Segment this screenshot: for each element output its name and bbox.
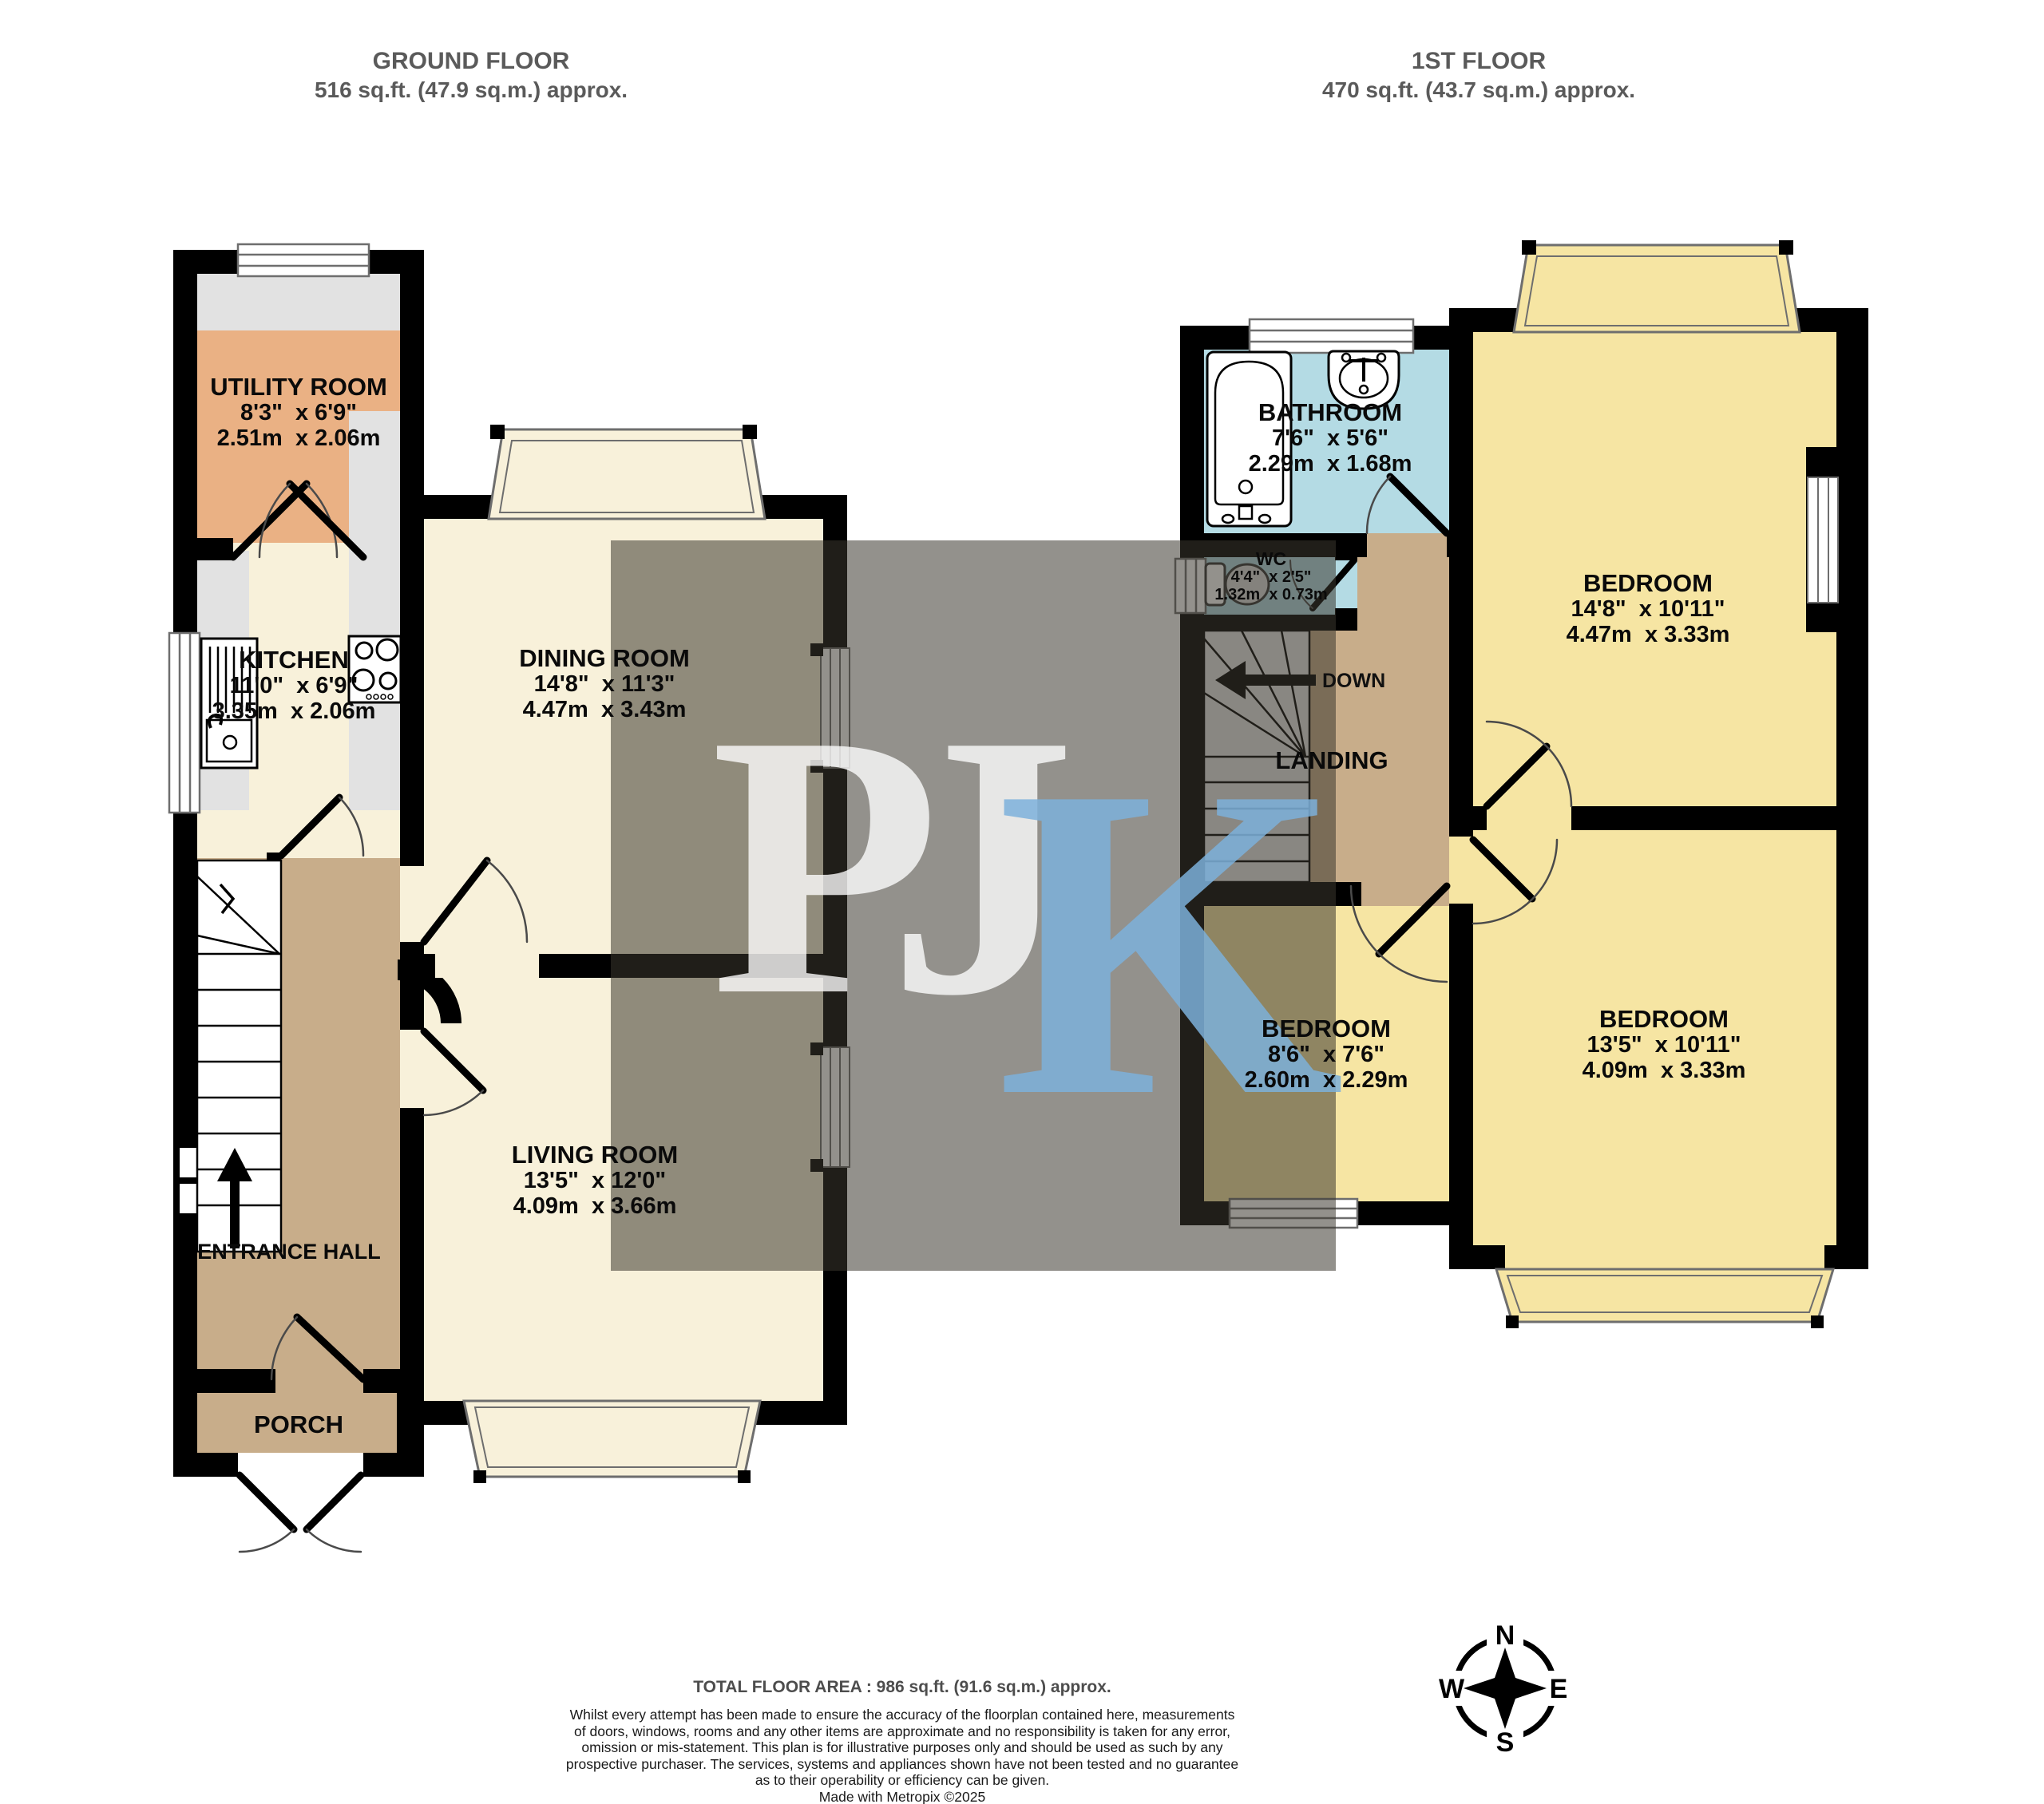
landing-floor-right (1357, 557, 1449, 882)
entrance-hall-label: ENTRANCE HALL (197, 1239, 381, 1265)
bedroom1-side-window (1808, 477, 1838, 603)
room-dims-imperial: 8'3" x 6'9" (210, 400, 387, 425)
dining-room-label: DINING ROOM 14'8" x 11'3" 4.47m x 3.43m (519, 645, 690, 722)
stairs-ground (197, 860, 281, 1252)
dining-bay-window (489, 425, 765, 519)
utility-counter-top (197, 274, 400, 330)
bay-opening-bedroom3 (1505, 1245, 1824, 1269)
landing-label: LANDING (1275, 747, 1388, 773)
door-opening-dining-living (435, 954, 539, 978)
room-dims-metric: 4.09m x 3.33m (1583, 1058, 1746, 1083)
room-dims-metric: 3.35m x 2.06m (212, 698, 376, 724)
door-opening-hall-dining (400, 866, 424, 942)
room-name: BATHROOM (1249, 399, 1412, 425)
room-name: DINING ROOM (519, 645, 690, 671)
room-dims-metric: 2.60m x 2.29m (1245, 1067, 1408, 1093)
room-name: WC (1214, 549, 1327, 568)
room-dims-imperial: 13'5" x 12'0" (512, 1168, 678, 1193)
bedroom1-label: BEDROOM 14'8" x 10'11" 4.47m x 3.33m (1567, 570, 1730, 647)
room-dims-metric: 4.47m x 3.43m (519, 697, 690, 722)
porch-label: PORCH (254, 1411, 343, 1438)
kitchen-label: KITCHEN 11'0" x 6'9" 3.35m x 2.06m (212, 647, 376, 724)
floorplan-canvas: P J K N E S W GROUND FLOOR 516 sq.ft. (4… (0, 0, 2044, 1804)
ground-floor-title: GROUND FLOOR (315, 46, 628, 77)
compass-west-label: W (1439, 1674, 1465, 1704)
stairs-down-label: DOWN (1322, 670, 1385, 693)
living-bay-window (464, 1401, 760, 1483)
door-opening-hall-living (400, 1030, 424, 1108)
compass-east-label: E (1550, 1674, 1568, 1704)
door-opening-bedroom3 (1449, 837, 1473, 904)
first-floor-area: 470 sq.ft. (43.7 sq.m.) approx. (1322, 77, 1635, 104)
wc-label: WC 4'4" x 2'5" 1.32m x 0.73m (1214, 549, 1327, 603)
room-name: BEDROOM (1583, 1006, 1746, 1032)
ground-floor-header: GROUND FLOOR 516 sq.ft. (47.9 sq.m.) app… (315, 46, 628, 104)
made-with-credit: Made with Metropix ©2025 (566, 1789, 1238, 1804)
room-name: LANDING (1275, 747, 1388, 773)
utility-window (238, 244, 369, 276)
bedroom3-bay-window (1496, 1269, 1833, 1328)
room-name: PORCH (254, 1411, 343, 1438)
room-dims-imperial: 11'0" x 6'9" (212, 673, 376, 698)
room-name: ENTRANCE HALL (197, 1239, 381, 1265)
room-dims-metric: 2.29m x 1.68m (1249, 451, 1412, 477)
bedroom3-label: BEDROOM 13'5" x 10'11" 4.09m x 3.33m (1583, 1006, 1746, 1083)
room-dims-metric: 4.47m x 3.33m (1567, 622, 1730, 647)
compass-star (1464, 1648, 1547, 1729)
room-dims-metric: 1.32m x 0.73m (1214, 586, 1327, 603)
room-dims-imperial: 7'6" x 5'6" (1249, 425, 1412, 451)
room-dims-imperial: 8'6" x 7'6" (1245, 1042, 1408, 1067)
door-opening-bathroom (1367, 533, 1447, 557)
bedroom2-label: BEDROOM 8'6" x 7'6" 2.60m x 2.29m (1245, 1015, 1408, 1093)
disclaimer-line: prospective purchaser. The services, sys… (566, 1756, 1238, 1773)
total-floor-area: TOTAL FLOOR AREA : 986 sq.ft. (91.6 sq.m… (693, 1678, 1111, 1697)
door-opening-bedroom1 (1487, 806, 1571, 830)
compass-south-label: S (1496, 1727, 1515, 1758)
room-dims-imperial: 4'4" x 2'5" (1214, 568, 1327, 586)
watermark: P J K (611, 540, 1346, 1271)
room-name: BEDROOM (1567, 570, 1730, 596)
room-dims-metric: 2.51m x 2.06m (210, 425, 387, 451)
room-name: LIVING ROOM (512, 1141, 678, 1168)
first-floor-header: 1ST FLOOR 470 sq.ft. (43.7 sq.m.) approx… (1322, 46, 1635, 104)
compass-rose: N E S W (1433, 1617, 1577, 1759)
compass-north-label: N (1495, 1620, 1515, 1651)
kitchen-window (169, 633, 200, 813)
room-name: KITCHEN (212, 647, 376, 673)
disclaimer-line: Whilst every attempt has been made to en… (566, 1707, 1238, 1723)
wall-stub-utility-kitchen (197, 538, 233, 560)
floorplan-drawing: P J K N E S W (0, 0, 2044, 1804)
room-dims-imperial: 14'8" x 11'3" (519, 671, 690, 697)
room-dims-imperial: 13'5" x 10'11" (1583, 1032, 1746, 1058)
room-dims-metric: 4.09m x 3.66m (512, 1193, 678, 1219)
disclaimer-line: omission or mis-statement. This plan is … (566, 1739, 1238, 1756)
disclaimer-line: of doors, windows, rooms and any other i… (566, 1723, 1238, 1740)
first-floor-title: 1ST FLOOR (1322, 46, 1635, 77)
room-name: UTILITY ROOM (210, 374, 387, 400)
ground-floor-area: 516 sq.ft. (47.9 sq.m.) approx. (315, 77, 628, 104)
room-name: BEDROOM (1245, 1015, 1408, 1042)
bathroom-label: BATHROOM 7'6" x 5'6" 2.29m x 1.68m (1249, 399, 1412, 477)
room-dims-imperial: 14'8" x 10'11" (1567, 596, 1730, 622)
bedroom1-bay-window (1514, 240, 1800, 332)
utility-room-label: UTILITY ROOM 8'3" x 6'9" 2.51m x 2.06m (210, 374, 387, 451)
door-opening-hall-porch (275, 1369, 363, 1393)
living-room-label: LIVING ROOM 13'5" x 12'0" 4.09m x 3.66m (512, 1141, 678, 1219)
disclaimer-text: Whilst every attempt has been made to en… (566, 1707, 1238, 1804)
bathroom-window (1250, 319, 1413, 353)
disclaimer-line: as to their operability or efficiency ca… (566, 1772, 1238, 1789)
bay-opening-living (485, 1377, 743, 1401)
door-opening-porch-entry (238, 1453, 363, 1477)
